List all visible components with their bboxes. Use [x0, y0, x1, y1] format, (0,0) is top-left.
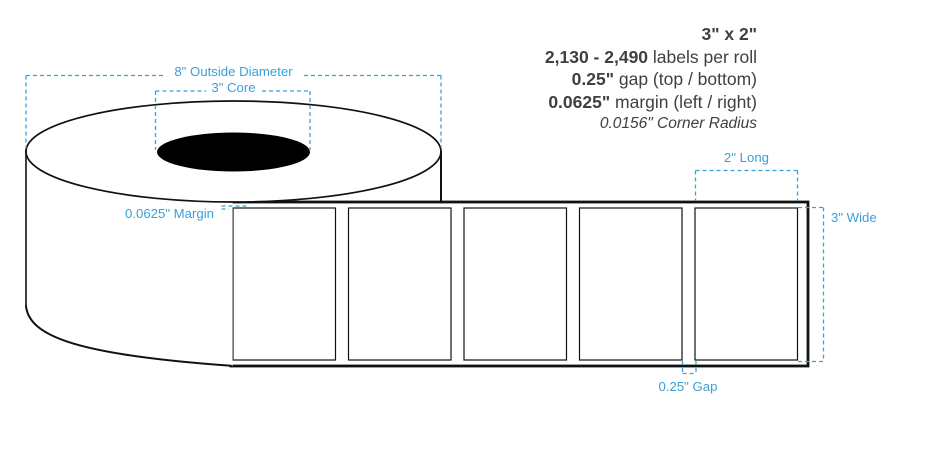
spec-block: 3" x 2" 2,130 - 2,490 labels per roll 0.… [545, 23, 757, 136]
spec-labels-per-roll-text: labels per roll [648, 47, 757, 67]
spec-corner-radius: 0.0156" Corner Radius [545, 113, 757, 136]
outside-diameter-label: 8" Outside Diameter [131, 65, 336, 79]
spec-gap-value: 0.25" [572, 69, 614, 89]
label-length-label: 2" Long [694, 151, 799, 165]
spec-labels-per-roll: 2,130 - 2,490 labels per roll [545, 46, 757, 69]
label-row [233, 208, 798, 360]
label-rect [580, 208, 683, 360]
label-length-dimension [696, 171, 798, 202]
spec-gap: 0.25" gap (top / bottom) [545, 68, 757, 91]
spec-gap-text: gap (top / bottom) [614, 69, 757, 89]
label-roll-spec-figure: 8" Outside Diameter 3" Core 0.0625" Marg… [0, 0, 927, 459]
spec-margin-text: margin (left / right) [610, 92, 757, 112]
margin-label: 0.0625" Margin [92, 207, 214, 221]
label-rect [695, 208, 798, 360]
label-gap-label: 0.25" Gap [638, 380, 738, 394]
roll-width-label: 3" Wide [831, 211, 877, 225]
label-rect [233, 208, 336, 360]
spec-labels-per-roll-value: 2,130 - 2,490 [545, 47, 648, 67]
label-rect [349, 208, 452, 360]
core-label: 3" Core [133, 81, 334, 95]
spec-size: 3" x 2" [545, 23, 757, 46]
label-rect [464, 208, 567, 360]
spec-margin-value: 0.0625" [548, 92, 610, 112]
roll-core-hole [157, 133, 310, 172]
spec-margin: 0.0625" margin (left / right) [545, 91, 757, 114]
